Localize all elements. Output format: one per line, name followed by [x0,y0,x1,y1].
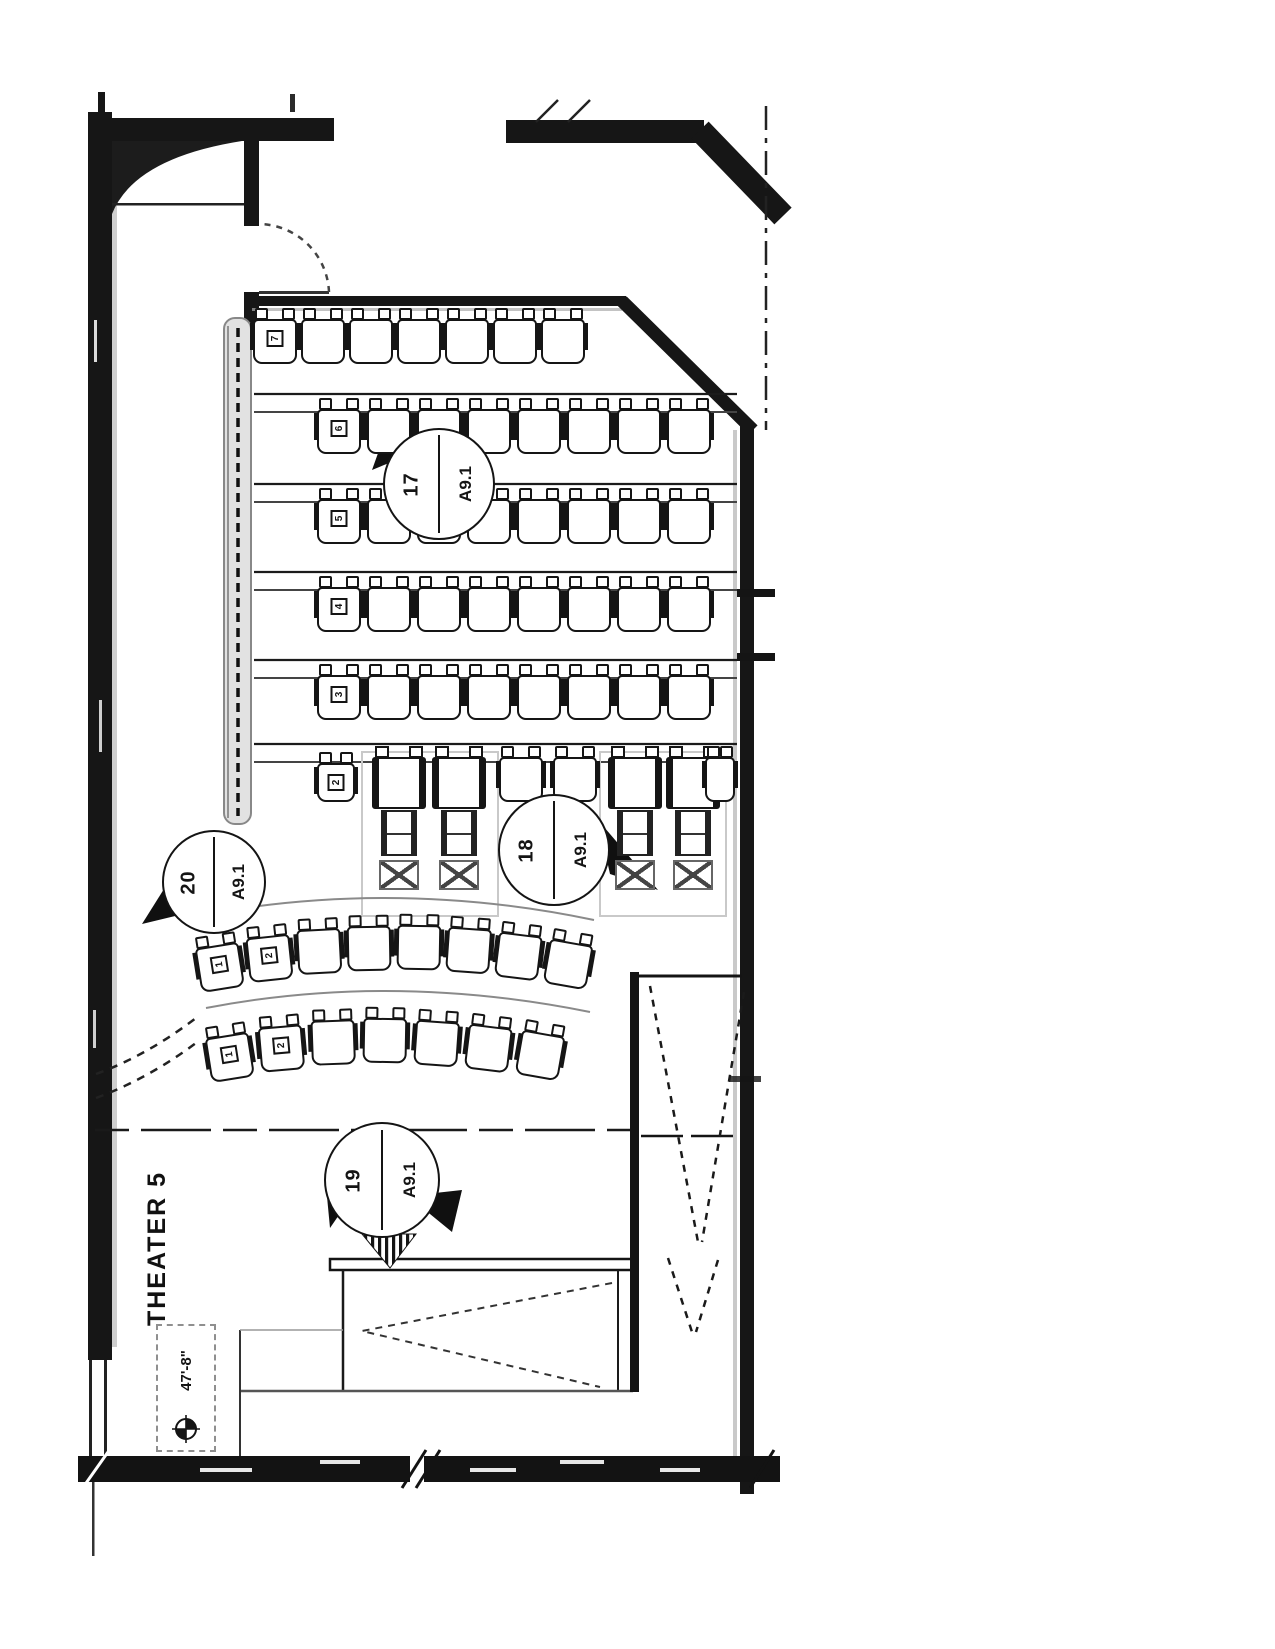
seat-body [296,928,342,975]
screen [330,1259,633,1270]
seat-body [567,587,611,632]
seat-body [567,409,611,454]
seat [348,308,394,364]
callout-number: 17 [401,472,424,496]
top-wall [96,118,334,141]
row-number-label: 4 [331,598,348,615]
callout-sheet: A9.1 [229,864,249,900]
seat [566,576,612,632]
callout-sheet: A9.1 [571,832,591,868]
row-number-label: 3 [331,686,348,703]
seat [666,488,712,544]
seat-body [542,938,593,990]
seat [396,308,442,364]
seat-body [445,927,492,975]
top-right-wall [506,120,704,143]
seat [466,576,512,632]
glider-base [439,860,479,890]
seat-body [617,499,661,544]
seat-body [514,1029,565,1081]
seat [493,920,545,981]
datum-target-icon [171,1414,201,1444]
glider-base [673,860,713,890]
callout-number: 20 [178,870,201,894]
seat-body [310,1019,356,1066]
seat-body [617,587,661,632]
seat [616,398,662,454]
seat: 5 [316,488,362,544]
seat-body [367,587,411,632]
seat-body [567,675,611,720]
seat [295,917,344,975]
seat-body [517,587,561,632]
seat [540,308,586,364]
seat [516,576,562,632]
seat-body [517,675,561,720]
seat [566,398,612,454]
callout-number: 18 [516,838,539,862]
seat [541,927,596,990]
row-number-label: 1 [220,1045,239,1064]
seat [444,308,490,364]
leg-rest [675,810,711,856]
stage-chevron [362,1283,612,1387]
seat-body [417,675,461,720]
glider-base [615,860,655,890]
seat-body [467,587,511,632]
recliner-seat [608,746,662,896]
seat: 7 [252,308,298,364]
seat [416,576,462,632]
seat: 2 [256,1013,307,1073]
seat-body [705,757,735,802]
leg-rest [617,810,653,856]
seat [466,664,512,720]
seat-body [349,319,393,364]
seat [616,576,662,632]
seat-body [417,587,461,632]
seat-body [413,1020,460,1068]
callout-number: 19 [343,1168,366,1192]
seat-body [363,1018,408,1064]
seat [416,664,462,720]
seat [666,576,712,632]
row-number-label: 2 [272,1036,290,1054]
seat: 4 [316,576,362,632]
seat-body [301,319,345,364]
recliner-seat [432,746,486,896]
diagonal-wall-top [700,130,783,216]
seat [566,664,612,720]
seat [492,308,538,364]
stage-dimension-text: 47'-8" [177,1350,194,1391]
seat-body [493,319,537,364]
glider-base [379,860,419,890]
section-callout-19: 19 A9.1 [324,1122,440,1238]
seat-body [617,409,661,454]
seat [616,664,662,720]
seat [300,308,346,364]
seat [516,488,562,544]
seat-body [467,675,511,720]
seat [513,1018,568,1081]
leg-rest [441,810,477,856]
seat [366,576,412,632]
scanned-floor-plan-page: 7654321212 17 A9.1 18 A9.1 19 A9.1 20 A9… [0,0,1275,1649]
row-number-label: 7 [267,330,284,347]
seat [516,398,562,454]
seat [366,664,412,720]
seat [616,488,662,544]
seat [516,664,562,720]
row-number-label: 2 [328,774,345,791]
callout-sheet: A9.1 [400,1162,420,1198]
seat [309,1008,357,1066]
seat [666,398,712,454]
seat: 6 [316,398,362,454]
seat-body [667,499,711,544]
seat-body [517,499,561,544]
row-number-label: 1 [210,955,229,974]
seat: 3 [316,664,362,720]
door-leaf [259,291,329,294]
row-number-label: 5 [331,510,348,527]
seat-body [541,319,585,364]
section-callout-20: 20 A9.1 [162,830,266,934]
seat [704,746,736,802]
seat-body [494,931,543,981]
seat-body [567,499,611,544]
seat [362,1007,409,1064]
seat: 2 [316,752,356,802]
seat-body [667,675,711,720]
seat-body [397,925,442,971]
seat-body [397,319,441,364]
auditorium-back-wall [246,296,626,306]
seat-body [464,1023,513,1073]
row-number-label: 2 [260,946,279,965]
seat-body [347,926,392,972]
seat: 1 [202,1021,256,1084]
seat-body [517,409,561,454]
room-title: THEATER 5 [130,1158,186,1338]
vestibule-wall [244,118,259,226]
seat [498,746,544,802]
section-callout-18: 18 A9.1 [498,794,610,906]
right-wall [740,424,754,1494]
seat-body [445,319,489,364]
seat-body [432,757,486,809]
callout-sheet: A9.1 [456,466,476,502]
seat-body [667,587,711,632]
section-callout-17: 17 A9.1 [383,428,495,540]
seat: 1 [192,931,246,994]
seat-body [367,675,411,720]
seat-body [372,757,426,809]
leg-rest [381,810,417,856]
seat [396,914,443,971]
seat [346,915,393,972]
seat [444,915,494,974]
row-number-label: 6 [331,420,348,437]
stage-dimension-box: 47'-8" [156,1324,216,1452]
seat [412,1008,462,1067]
seat [666,664,712,720]
seat-body [608,757,662,809]
door-swing-arc [259,224,329,292]
seat [463,1012,515,1073]
seat [566,488,612,544]
seat-body [617,675,661,720]
ramp-dashes [650,986,744,1332]
seat-body [667,409,711,454]
recliner-seat [372,746,426,896]
corridor-wall [630,972,639,1392]
